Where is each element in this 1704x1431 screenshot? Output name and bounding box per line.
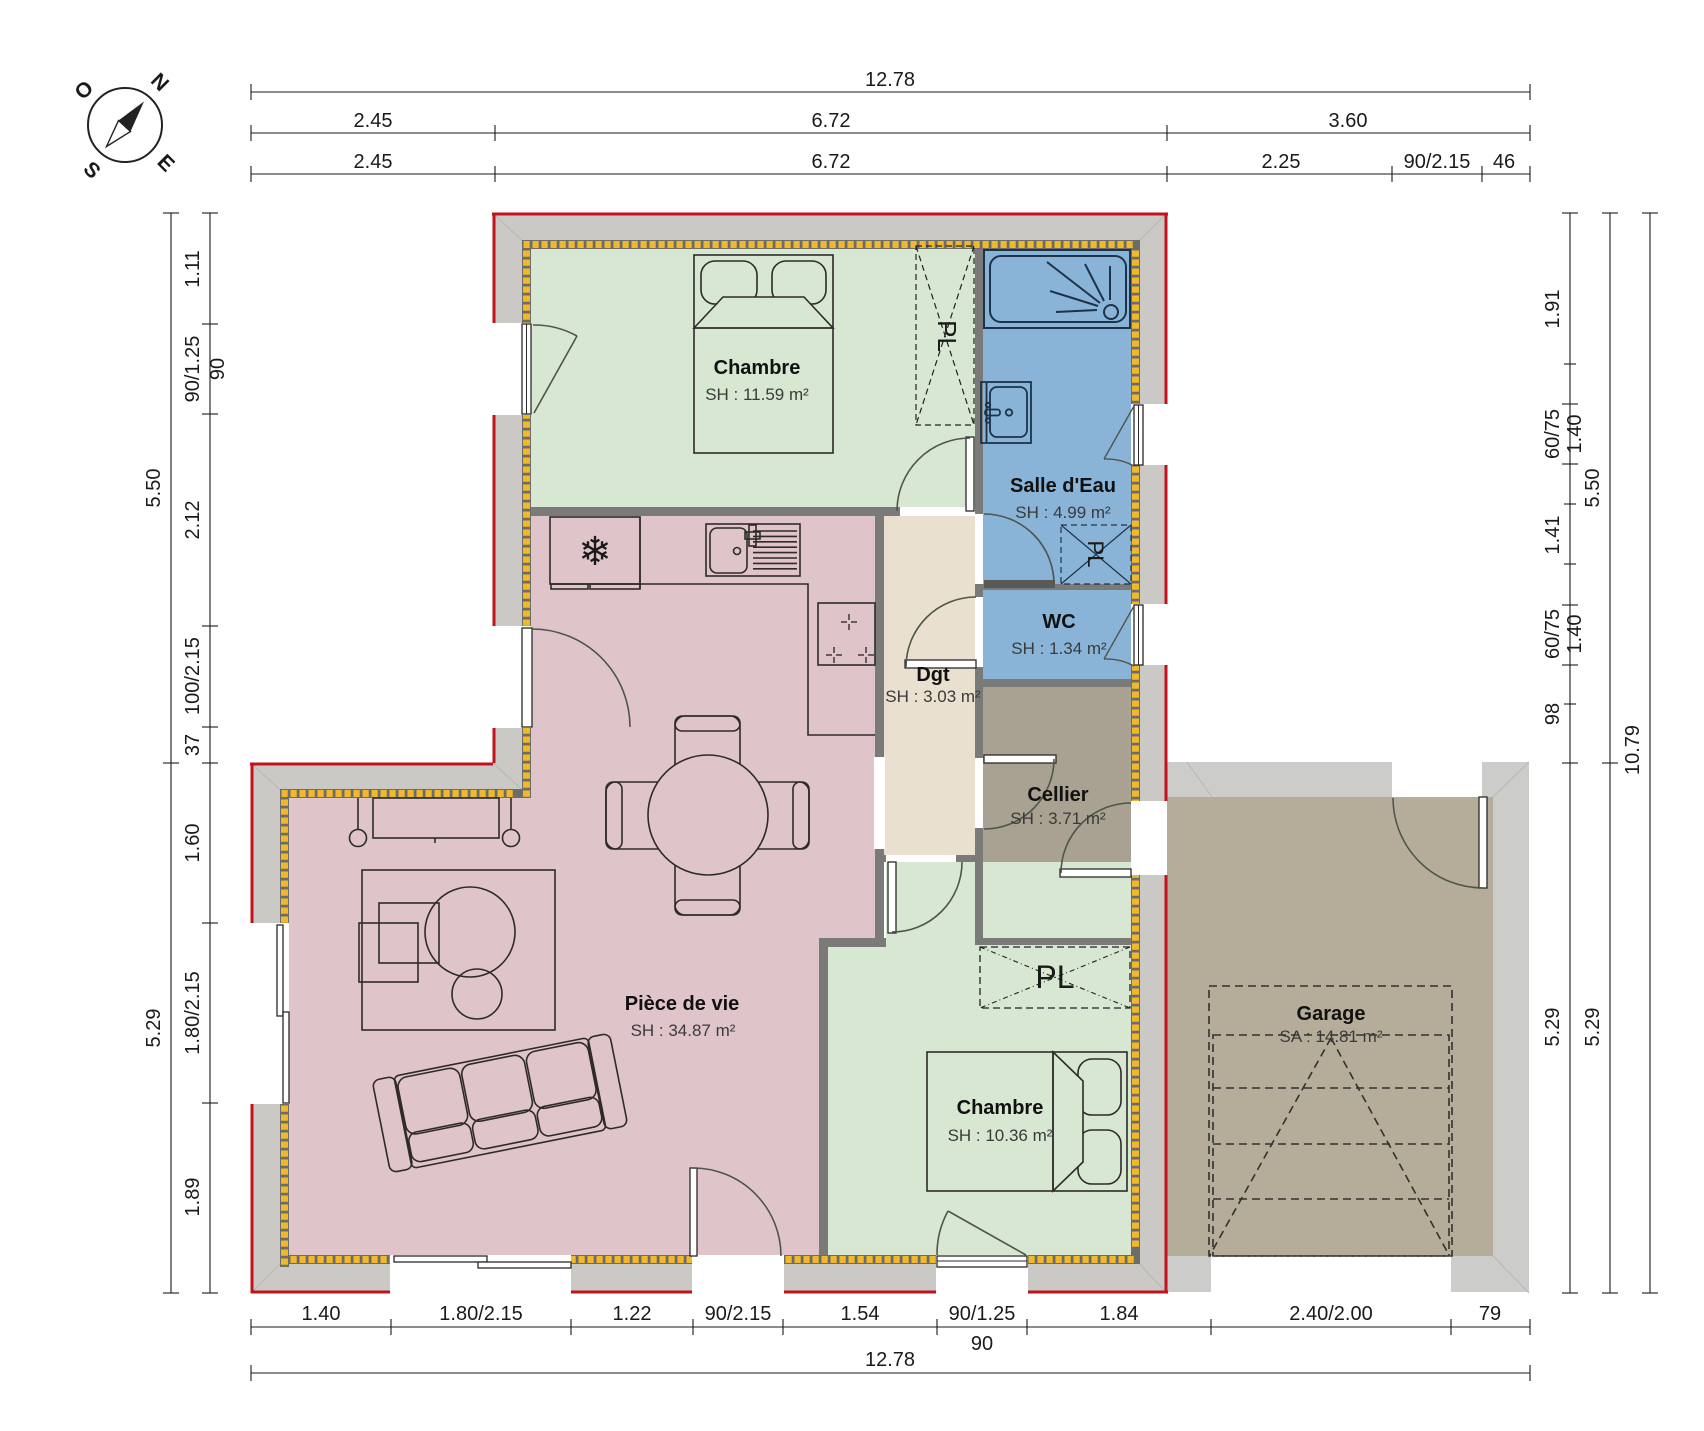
svg-text:SH : 3.71 m²: SH : 3.71 m² [1010,809,1106,828]
svg-text:Chambre: Chambre [714,357,801,379]
svg-text:1.41: 1.41 [1542,516,1564,555]
svg-text:90/2.15: 90/2.15 [1404,151,1471,173]
svg-text:90/1.25: 90/1.25 [949,1303,1016,1325]
svg-text:2.45: 2.45 [354,110,393,132]
svg-text:90/2.15: 90/2.15 [705,1303,772,1325]
svg-text:60/75: 60/75 [1542,609,1564,659]
svg-text:1.60: 1.60 [182,824,204,863]
svg-text:SH : 34.87 m²: SH : 34.87 m² [631,1021,736,1040]
svg-text:1.11: 1.11 [182,250,204,287]
svg-text:1.80/2.15: 1.80/2.15 [182,971,204,1054]
svg-text:Pièce de vie: Pièce de vie [625,993,740,1015]
svg-text:2.40/2.00: 2.40/2.00 [1289,1303,1372,1325]
svg-text:Salle d'Eau: Salle d'Eau [1010,475,1116,497]
svg-text:SH : 3.03 m²: SH : 3.03 m² [885,687,981,706]
svg-text:60/75: 60/75 [1542,409,1564,459]
svg-text:Chambre: Chambre [957,1097,1044,1119]
svg-text:SH : 10.36 m²: SH : 10.36 m² [948,1126,1053,1145]
svg-text:5.29: 5.29 [1542,1008,1564,1047]
svg-text:6.72: 6.72 [812,151,851,173]
svg-text:PL: PL [932,320,962,352]
svg-text:90/1.25: 90/1.25 [182,336,204,403]
svg-text:PL: PL [1083,541,1108,568]
svg-text:5.29: 5.29 [1582,1008,1604,1047]
svg-text:1.54: 1.54 [841,1303,880,1325]
svg-text:SH : 11.59 m²: SH : 11.59 m² [705,385,809,404]
svg-text:1.40: 1.40 [1564,615,1586,654]
svg-text:1.89: 1.89 [182,1178,204,1217]
svg-text:90: 90 [207,358,229,380]
svg-text:SH : 4.99 m²: SH : 4.99 m² [1015,503,1111,522]
svg-text:SH : 1.34 m²: SH : 1.34 m² [1011,639,1107,658]
svg-text:12.78: 12.78 [865,69,915,91]
svg-text:100/2.15: 100/2.15 [182,637,204,715]
svg-text:5.50: 5.50 [1582,469,1604,508]
svg-text:❄: ❄ [578,530,612,574]
svg-text:3.60: 3.60 [1329,110,1368,132]
svg-text:37: 37 [182,734,204,756]
svg-text:SA : 14.81 m²: SA : 14.81 m² [1280,1027,1383,1046]
svg-text:PL: PL [1035,959,1074,995]
svg-text:6.72: 6.72 [812,110,851,132]
svg-text:2.45: 2.45 [354,151,393,173]
svg-text:46: 46 [1493,151,1515,173]
svg-text:1.40: 1.40 [1564,415,1586,454]
svg-text:Garage: Garage [1297,1003,1366,1025]
svg-text:1.84: 1.84 [1100,1303,1139,1325]
svg-text:1.22: 1.22 [613,1303,652,1325]
svg-text:WC: WC [1042,611,1075,633]
svg-text:1.91: 1.91 [1542,290,1564,329]
svg-text:1.40: 1.40 [302,1303,341,1325]
svg-text:10.79: 10.79 [1622,725,1644,775]
svg-text:Cellier: Cellier [1027,784,1088,806]
svg-text:1.80/2.15: 1.80/2.15 [439,1303,522,1325]
svg-text:2.12: 2.12 [182,501,204,540]
svg-text:12.78: 12.78 [865,1349,915,1371]
svg-text:5.50: 5.50 [143,469,165,508]
svg-text:79: 79 [1479,1303,1501,1325]
svg-text:90: 90 [971,1333,993,1355]
svg-text:5.29: 5.29 [143,1009,165,1048]
svg-text:Dgt: Dgt [916,664,950,686]
svg-text:2.25: 2.25 [1262,151,1301,173]
svg-text:98: 98 [1542,703,1564,725]
